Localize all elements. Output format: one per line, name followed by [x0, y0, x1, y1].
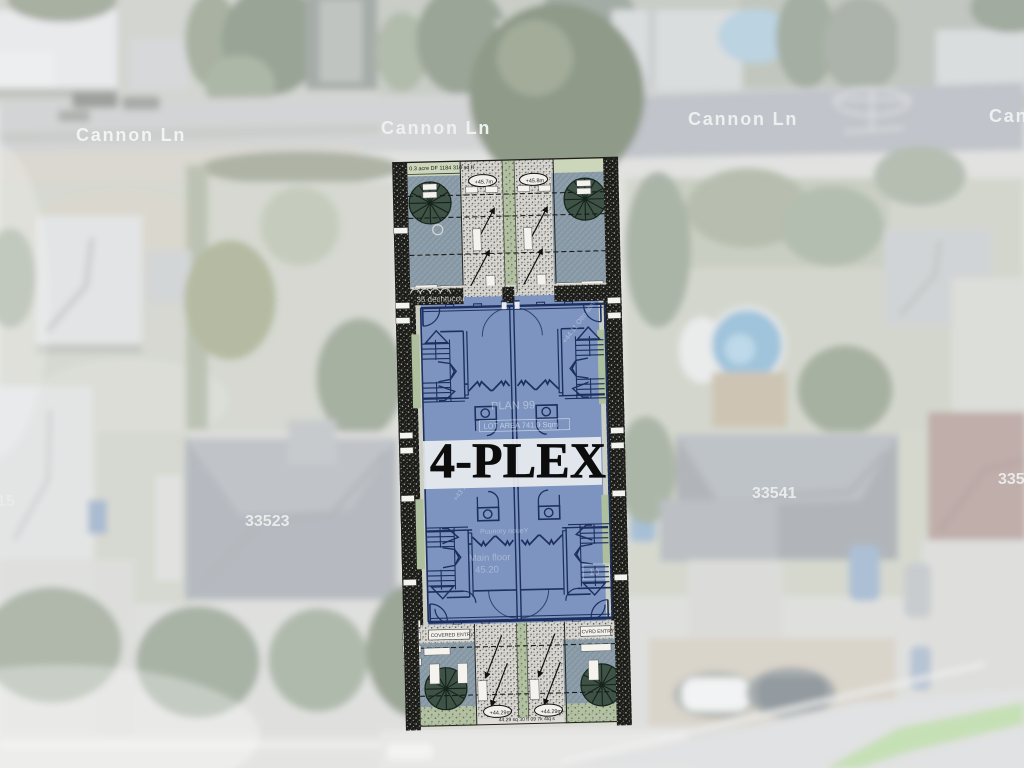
svg-text:+45.7m: +45.7m	[475, 179, 494, 185]
svg-text:Cannon Ln: Cannon Ln	[688, 109, 798, 129]
svg-text:33523: 33523	[245, 513, 290, 530]
svg-text:LOT AREA 741.9 Sqm: LOT AREA 741.9 Sqm	[483, 420, 558, 431]
svg-text:CVRD ENTRY: CVRD ENTRY	[582, 629, 615, 636]
svg-text:33541: 33541	[752, 485, 797, 502]
svg-text:35 dechtucou: 35 dechtucou	[416, 294, 464, 304]
svg-text:Cannon Ln: Cannon Ln	[381, 118, 491, 138]
svg-text:335: 335	[998, 471, 1024, 488]
svg-text:45.20: 45.20	[475, 564, 499, 576]
svg-text:PLAN 99: PLAN 99	[491, 399, 535, 412]
svg-text:COVERED ENTRY: COVERED ENTRY	[431, 632, 475, 639]
svg-text:+44.29m: +44.29m	[540, 709, 562, 716]
svg-text:Cannon Ln: Cannon Ln	[76, 125, 186, 145]
svg-text:Can: Can	[989, 106, 1024, 126]
svg-text:Main floor: Main floor	[469, 552, 511, 564]
svg-text:4-PLEX: 4-PLEX	[430, 432, 606, 488]
svg-text:Puunory noueY: Puunory noueY	[480, 528, 529, 536]
svg-text:+44.29m: +44.29m	[490, 710, 512, 717]
svg-text:+45.8m: +45.8m	[526, 178, 545, 184]
svg-text:15: 15	[0, 493, 15, 510]
svg-text:10: 10	[589, 567, 599, 577]
